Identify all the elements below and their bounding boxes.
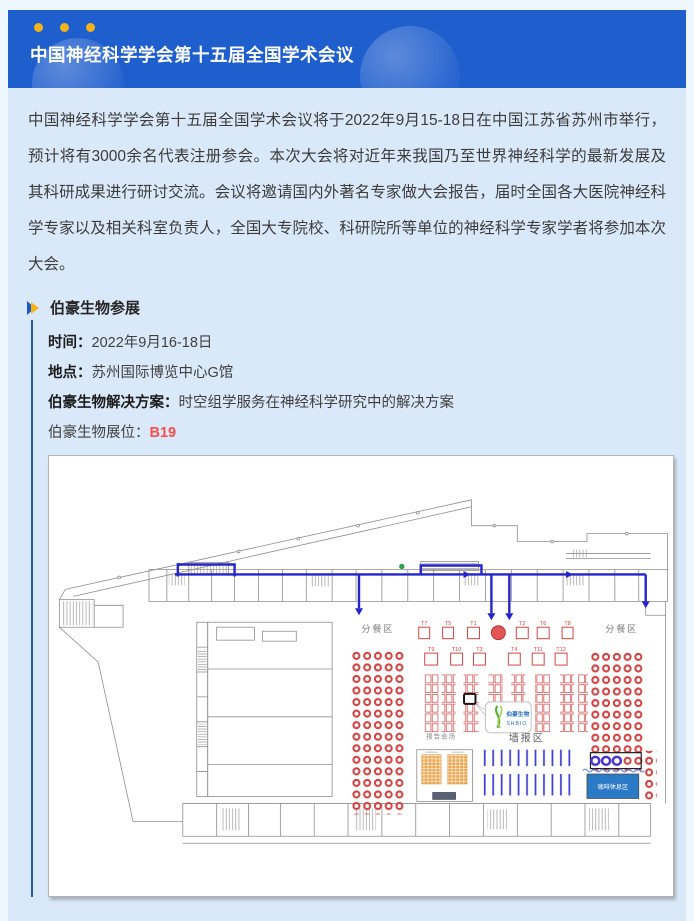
detail-row-time: 时间：2022年9月16-18日 — [48, 328, 686, 358]
floor-plan-svg: T7 T5 T1 T2 T6 T8 T9 T10 T3 T4 T11 T12 — [49, 456, 673, 896]
svg-text:T5: T5 — [445, 621, 451, 627]
label-dining-left: 分餐区 — [362, 623, 395, 634]
label-lecture-hall: 报告会场 — [426, 732, 456, 741]
route-line — [175, 564, 650, 620]
article-page: 中国神经科学学会第十五届全国学术会议 中国神经科学学会第十五届全国学术会议将于2… — [8, 0, 686, 921]
svg-text:T7: T7 — [421, 621, 427, 627]
label-poster-area: 墙报区 — [509, 732, 545, 745]
label-coffee-area: 咖啡休息区 — [597, 783, 628, 791]
route-start-dot — [399, 564, 404, 569]
svg-text:T8: T8 — [564, 621, 570, 627]
svg-text:T9: T9 — [428, 647, 434, 653]
detail-row-solution: 伯豪生物解决方案：时空组学服务在神经科学研究中的解决方案 — [48, 388, 686, 418]
intro-paragraph: 中国神经科学学会第十五届全国学术会议将于2022年9月15-18日在中国江苏省苏… — [28, 88, 666, 283]
booth-number: B19 — [150, 425, 177, 441]
svg-text:T11: T11 — [534, 647, 543, 653]
svg-text:T1: T1 — [470, 621, 476, 627]
route-arrowheads — [355, 571, 650, 620]
svg-text:T10: T10 — [452, 647, 461, 653]
poster-boards-row1 — [480, 750, 573, 766]
poster-boards-row2 — [480, 774, 573, 795]
section-heading: 伯豪生物参展 — [26, 297, 686, 318]
svg-text:T3: T3 — [476, 647, 482, 653]
logo-name: 伯豪生物 — [506, 710, 529, 718]
page-title: 中国神经科学学会第十五届全国学术会议 — [30, 42, 354, 67]
detail-row-place: 地点：苏州国际博览中心G馆 — [48, 358, 686, 388]
logo-sub: SHBIO — [506, 721, 527, 727]
dining-tables-right-strip — [643, 751, 657, 801]
b19-booth-marker — [464, 694, 475, 704]
dining-tables-left — [351, 650, 405, 814]
article-body: 中国神经科学学会第十五届全国学术会议将于2022年9月15-18日在中国江苏省苏… — [8, 88, 686, 921]
stage-screen — [433, 792, 456, 799]
highlight-circle-marker — [491, 626, 505, 640]
banner-decor-circle — [360, 26, 460, 88]
section-heading-label: 伯豪生物参展 — [50, 297, 140, 318]
banner-dots-icon — [34, 23, 95, 32]
svg-text:T2: T2 — [519, 621, 525, 627]
floor-plan-image: T7 T5 T1 T2 T6 T8 T9 T10 T3 T4 T11 T12 — [48, 455, 674, 897]
stage-area — [417, 750, 473, 802]
svg-text:T12: T12 — [556, 647, 565, 653]
svg-text:T4: T4 — [511, 647, 517, 653]
shbio-callout: 伯豪生物 SHBIO — [476, 702, 531, 733]
double-arrow-icon — [26, 300, 42, 316]
exhibit-details: 时间：2022年9月16-18日 地点：苏州国际博览中心G馆 伯豪生物解决方案：… — [31, 320, 686, 897]
detail-row-booth: 伯豪生物展位：B19 — [48, 418, 686, 448]
label-dining-right: 分餐区 — [605, 623, 638, 634]
svg-text:T6: T6 — [540, 621, 546, 627]
header-banner: 中国神经科学学会第十五届全国学术会议 — [8, 10, 686, 88]
